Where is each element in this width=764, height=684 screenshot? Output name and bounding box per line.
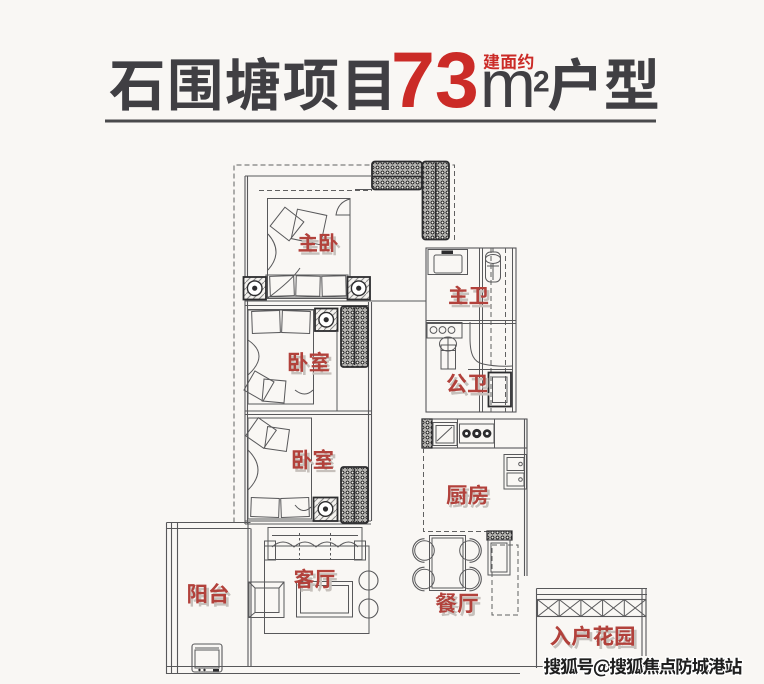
svg-text:73: 73 [391, 35, 479, 124]
svg-text:m: m [480, 47, 536, 122]
svg-text:2: 2 [533, 66, 550, 99]
